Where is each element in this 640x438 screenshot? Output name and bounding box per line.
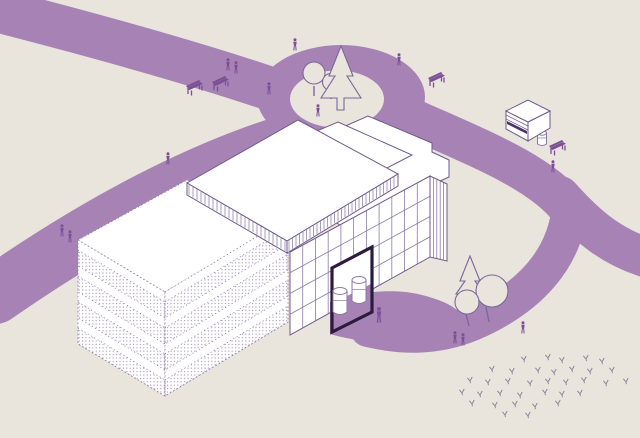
illustration-svg <box>0 0 640 438</box>
island-tree-canopy <box>303 62 325 84</box>
site-plan-illustration <box>0 0 640 438</box>
trash-bin-icon <box>352 277 366 304</box>
east-tree-canopy <box>455 290 479 314</box>
trash-bin-icon <box>333 288 347 315</box>
right-end-wall <box>430 176 447 261</box>
east-tree-canopy <box>476 275 508 307</box>
